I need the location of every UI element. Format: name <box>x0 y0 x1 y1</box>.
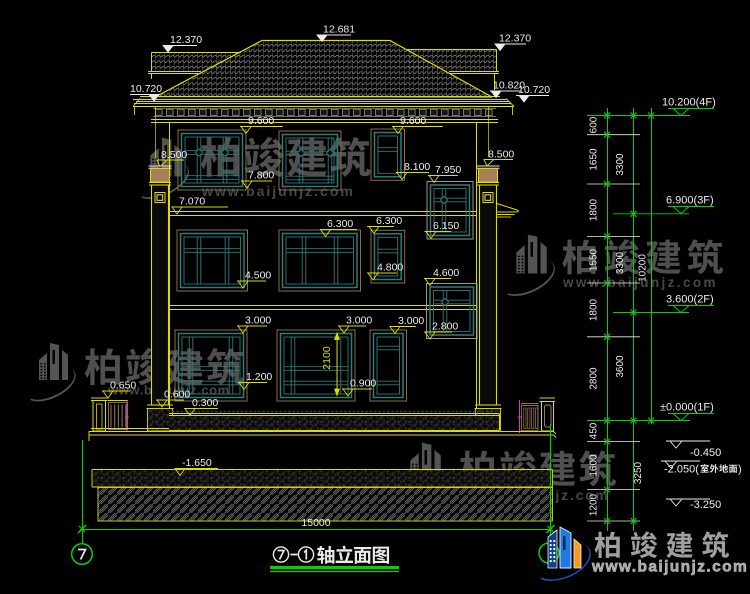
svg-text:12.370: 12.370 <box>499 33 531 45</box>
svg-text:6.300: 6.300 <box>327 218 353 230</box>
svg-text:4.800: 4.800 <box>377 262 403 274</box>
svg-text:9.600: 9.600 <box>400 115 426 127</box>
svg-text:3300: 3300 <box>615 251 626 274</box>
svg-text:±0.000(1F): ±0.000(1F) <box>660 402 714 414</box>
svg-text:www.baijunjz.com: www.baijunjz.com <box>201 183 355 199</box>
svg-text:7.070: 7.070 <box>179 196 205 208</box>
svg-text:1.200: 1.200 <box>246 371 272 383</box>
svg-text:1800: 1800 <box>589 298 600 321</box>
svg-text:3300: 3300 <box>615 153 626 176</box>
svg-text:0.900: 0.900 <box>350 378 376 390</box>
svg-text:10.200(4F): 10.200(4F) <box>662 97 716 109</box>
svg-text:6.900(3F): 6.900(3F) <box>666 195 714 207</box>
svg-text:-1.650: -1.650 <box>182 457 212 469</box>
svg-text:-2.050(: -2.050( <box>664 464 699 476</box>
svg-text:6.150: 6.150 <box>433 220 459 232</box>
svg-text:3.000: 3.000 <box>245 315 271 327</box>
svg-text:0.650: 0.650 <box>110 380 136 392</box>
svg-text:): ) <box>738 464 742 476</box>
svg-text:450: 450 <box>589 422 600 439</box>
svg-text:www.baijunjz.com: www.baijunjz.com <box>591 559 748 576</box>
svg-text:1800: 1800 <box>589 198 600 221</box>
svg-text:12.370: 12.370 <box>170 34 202 46</box>
svg-text:1550: 1550 <box>589 248 600 271</box>
svg-text:1200: 1200 <box>589 493 600 516</box>
svg-text:3.000: 3.000 <box>398 315 424 327</box>
svg-text:9.600: 9.600 <box>248 115 274 127</box>
svg-text:3250: 3250 <box>633 461 644 484</box>
svg-text:10.720: 10.720 <box>518 84 550 96</box>
svg-text:12.681: 12.681 <box>323 24 355 36</box>
svg-text:2800: 2800 <box>589 367 600 390</box>
svg-text:6.300: 6.300 <box>376 215 402 227</box>
svg-text:0.600: 0.600 <box>164 389 190 401</box>
svg-text:10200: 10200 <box>638 254 649 282</box>
svg-text:1650: 1650 <box>589 148 600 171</box>
svg-text:600: 600 <box>589 116 600 133</box>
svg-text:3.000: 3.000 <box>346 315 372 327</box>
svg-text:7.800: 7.800 <box>248 170 274 182</box>
svg-text:8.100: 8.100 <box>404 161 430 173</box>
svg-text:4.600: 4.600 <box>433 267 459 279</box>
svg-text:0.300: 0.300 <box>192 397 218 409</box>
svg-text:8.500: 8.500 <box>488 149 514 161</box>
svg-text:8.500: 8.500 <box>161 149 187 161</box>
svg-text:3600: 3600 <box>615 355 626 378</box>
svg-text:4.500: 4.500 <box>245 270 271 282</box>
svg-text:2100: 2100 <box>321 346 333 370</box>
svg-text:7.950: 7.950 <box>435 164 461 176</box>
svg-text:15000: 15000 <box>301 517 330 529</box>
svg-text:3.600(2F): 3.600(2F) <box>666 294 714 306</box>
svg-text:10.720: 10.720 <box>130 83 162 95</box>
svg-text:1600: 1600 <box>589 454 600 477</box>
svg-text:-0.450: -0.450 <box>690 447 721 459</box>
svg-text:2.800: 2.800 <box>432 321 458 333</box>
svg-text:-3.250: -3.250 <box>690 499 721 511</box>
